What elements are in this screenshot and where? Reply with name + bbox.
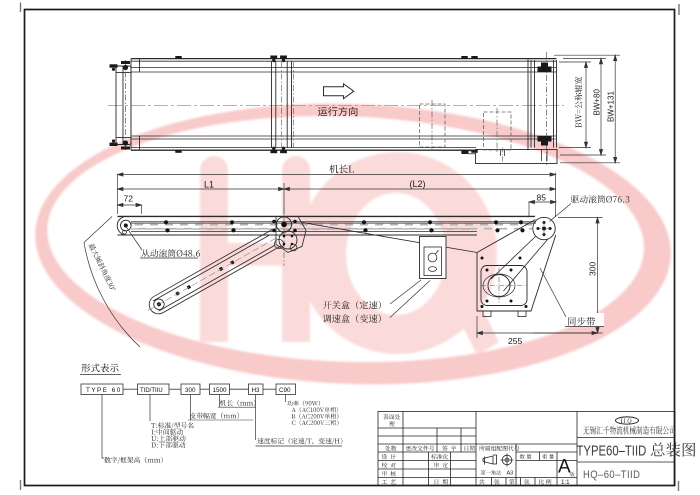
svg-text:HQ–60–TIID: HQ–60–TIID — [583, 469, 640, 481]
svg-text:(L2): (L2) — [410, 179, 426, 189]
svg-text:1:1: 1:1 — [561, 479, 570, 486]
svg-text:L1: L1 — [204, 180, 214, 190]
svg-text:BW+131: BW+131 — [607, 91, 616, 122]
svg-text:C90: C90 — [279, 387, 291, 394]
svg-text:300: 300 — [185, 387, 196, 394]
svg-text:TID/TIIU: TID/TIIU — [140, 388, 163, 394]
svg-text:1500: 1500 — [213, 387, 228, 394]
svg-text:A: A — [558, 457, 571, 478]
svg-text:TYPE 60: TYPE 60 — [86, 387, 122, 394]
svg-text:72: 72 — [124, 194, 134, 204]
svg-text:A3: A3 — [507, 471, 514, 477]
svg-text:H3: H3 — [252, 387, 261, 394]
svg-text:TYPE60–TIID: TYPE60–TIID — [577, 442, 647, 459]
svg-text:300: 300 — [588, 262, 598, 276]
svg-text:255: 255 — [508, 336, 522, 346]
svg-text:85: 85 — [537, 193, 547, 203]
svg-text:BW+80: BW+80 — [593, 88, 602, 115]
